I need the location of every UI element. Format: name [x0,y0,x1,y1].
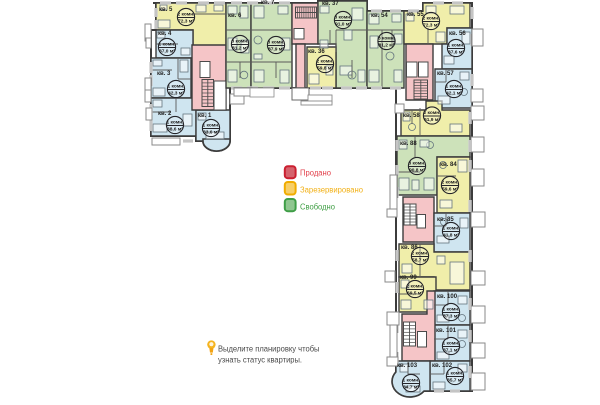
svg-text:кв. 100: кв. 100 [437,294,458,300]
svg-text:58,7 м²: 58,7 м² [412,258,428,264]
svg-text:кв. 84: кв. 84 [440,162,457,168]
svg-text:1 комн.: 1 комн. [167,120,184,126]
svg-text:кв. 58: кв. 58 [403,113,420,119]
svg-text:61,9 м²: 61,9 м² [424,117,440,123]
svg-text:кв. 6: кв. 6 [228,13,242,19]
svg-text:2 комн.: 2 комн. [317,59,334,65]
svg-text:1 комн.: 1 комн. [203,123,220,129]
svg-text:кв. 7: кв. 7 [261,0,275,6]
svg-text:2 комн.: 2 комн. [412,251,429,257]
svg-text:кв. 5: кв. 5 [159,7,173,13]
svg-text:3 комн.: 3 комн. [409,161,426,167]
svg-text:91,0 м²: 91,0 м² [335,22,351,28]
svg-text:кв. 1: кв. 1 [198,113,212,119]
svg-text:кв. 3: кв. 3 [157,71,171,77]
svg-text:1 комн.: 1 комн. [403,378,420,384]
svg-text:1 комн.: 1 комн. [446,84,463,90]
svg-text:59,6 м²: 59,6 м² [442,187,458,193]
svg-text:кв. 37: кв. 37 [322,1,339,7]
svg-text:38,6 м²: 38,6 м² [167,127,183,133]
svg-text:Свободно: Свободно [300,202,336,211]
svg-text:кв. 54: кв. 54 [371,13,388,19]
svg-text:3 комн.: 3 комн. [268,40,285,46]
svg-text:кв. 103: кв. 103 [397,363,418,369]
svg-text:Продано: Продано [300,169,332,178]
svg-text:2 комн.: 2 комн. [407,284,424,290]
svg-text:87,9 м²: 87,9 м² [268,47,284,53]
svg-text:72,3 м²: 72,3 м² [178,19,194,25]
svg-text:1 комн.: 1 комн. [443,307,460,313]
svg-text:3 комн.: 3 комн. [335,15,352,21]
svg-text:кв. 57: кв. 57 [437,71,454,77]
svg-text:69,5 м²: 69,5 м² [407,291,423,297]
svg-text:37,0 м²: 37,0 м² [159,49,175,55]
svg-text:37,3 м²: 37,3 м² [443,314,459,320]
svg-text:кв. 36: кв. 36 [308,49,325,55]
svg-text:3 комн.: 3 комн. [378,36,395,42]
svg-text:кв. 4: кв. 4 [158,31,172,37]
svg-text:1 комн.: 1 комн. [447,371,464,377]
svg-text:42,1 м²: 42,1 м² [446,91,462,97]
svg-text:41,8 м²: 41,8 м² [443,233,459,239]
svg-text:1 комн.: 1 комн. [448,43,465,49]
svg-text:кв. 101: кв. 101 [436,328,457,334]
svg-text:кв. 102: кв. 102 [432,363,453,369]
svg-text:кв. 88: кв. 88 [400,141,417,147]
svg-text:2 комн.: 2 комн. [423,16,440,22]
svg-text:34,7 м²: 34,7 м² [403,385,419,391]
svg-text:33,6 м²: 33,6 м² [203,130,219,136]
svg-text:1 комн.: 1 комн. [159,42,176,48]
svg-text:2 комн.: 2 комн. [424,110,441,116]
svg-text:35,7 м²: 35,7 м² [447,378,463,384]
svg-text:кв. 2: кв. 2 [158,111,172,117]
svg-text:1 комн.: 1 комн. [168,84,185,90]
svg-text:37,6 м²: 37,6 м² [448,50,464,56]
svg-text:81,2 м²: 81,2 м² [379,43,395,49]
svg-text:кв. 56: кв. 56 [449,31,466,37]
svg-text:Зарезервировано: Зарезервировано [300,186,364,195]
svg-text:1 комн.: 1 комн. [443,341,460,347]
svg-text:2 комн.: 2 комн. [442,180,459,186]
svg-text:90,8 м²: 90,8 м² [409,168,425,174]
svg-text:узнать статус квартиры.: узнать статус квартиры. [218,356,302,365]
svg-text:2 комн.: 2 комн. [178,12,195,18]
svg-text:81,2 м²: 81,2 м² [232,46,248,52]
svg-text:42,3 м²: 42,3 м² [168,91,184,97]
svg-text:Выделите планировку чтобы: Выделите планировку чтобы [218,345,320,354]
svg-text:72,3 м²: 72,3 м² [423,23,439,29]
svg-text:1 комн.: 1 комн. [443,226,460,232]
svg-text:3 комн.: 3 комн. [232,39,249,45]
svg-text:37,1 м²: 37,1 м² [443,348,459,354]
svg-text:59,8 м²: 59,8 м² [317,66,333,72]
